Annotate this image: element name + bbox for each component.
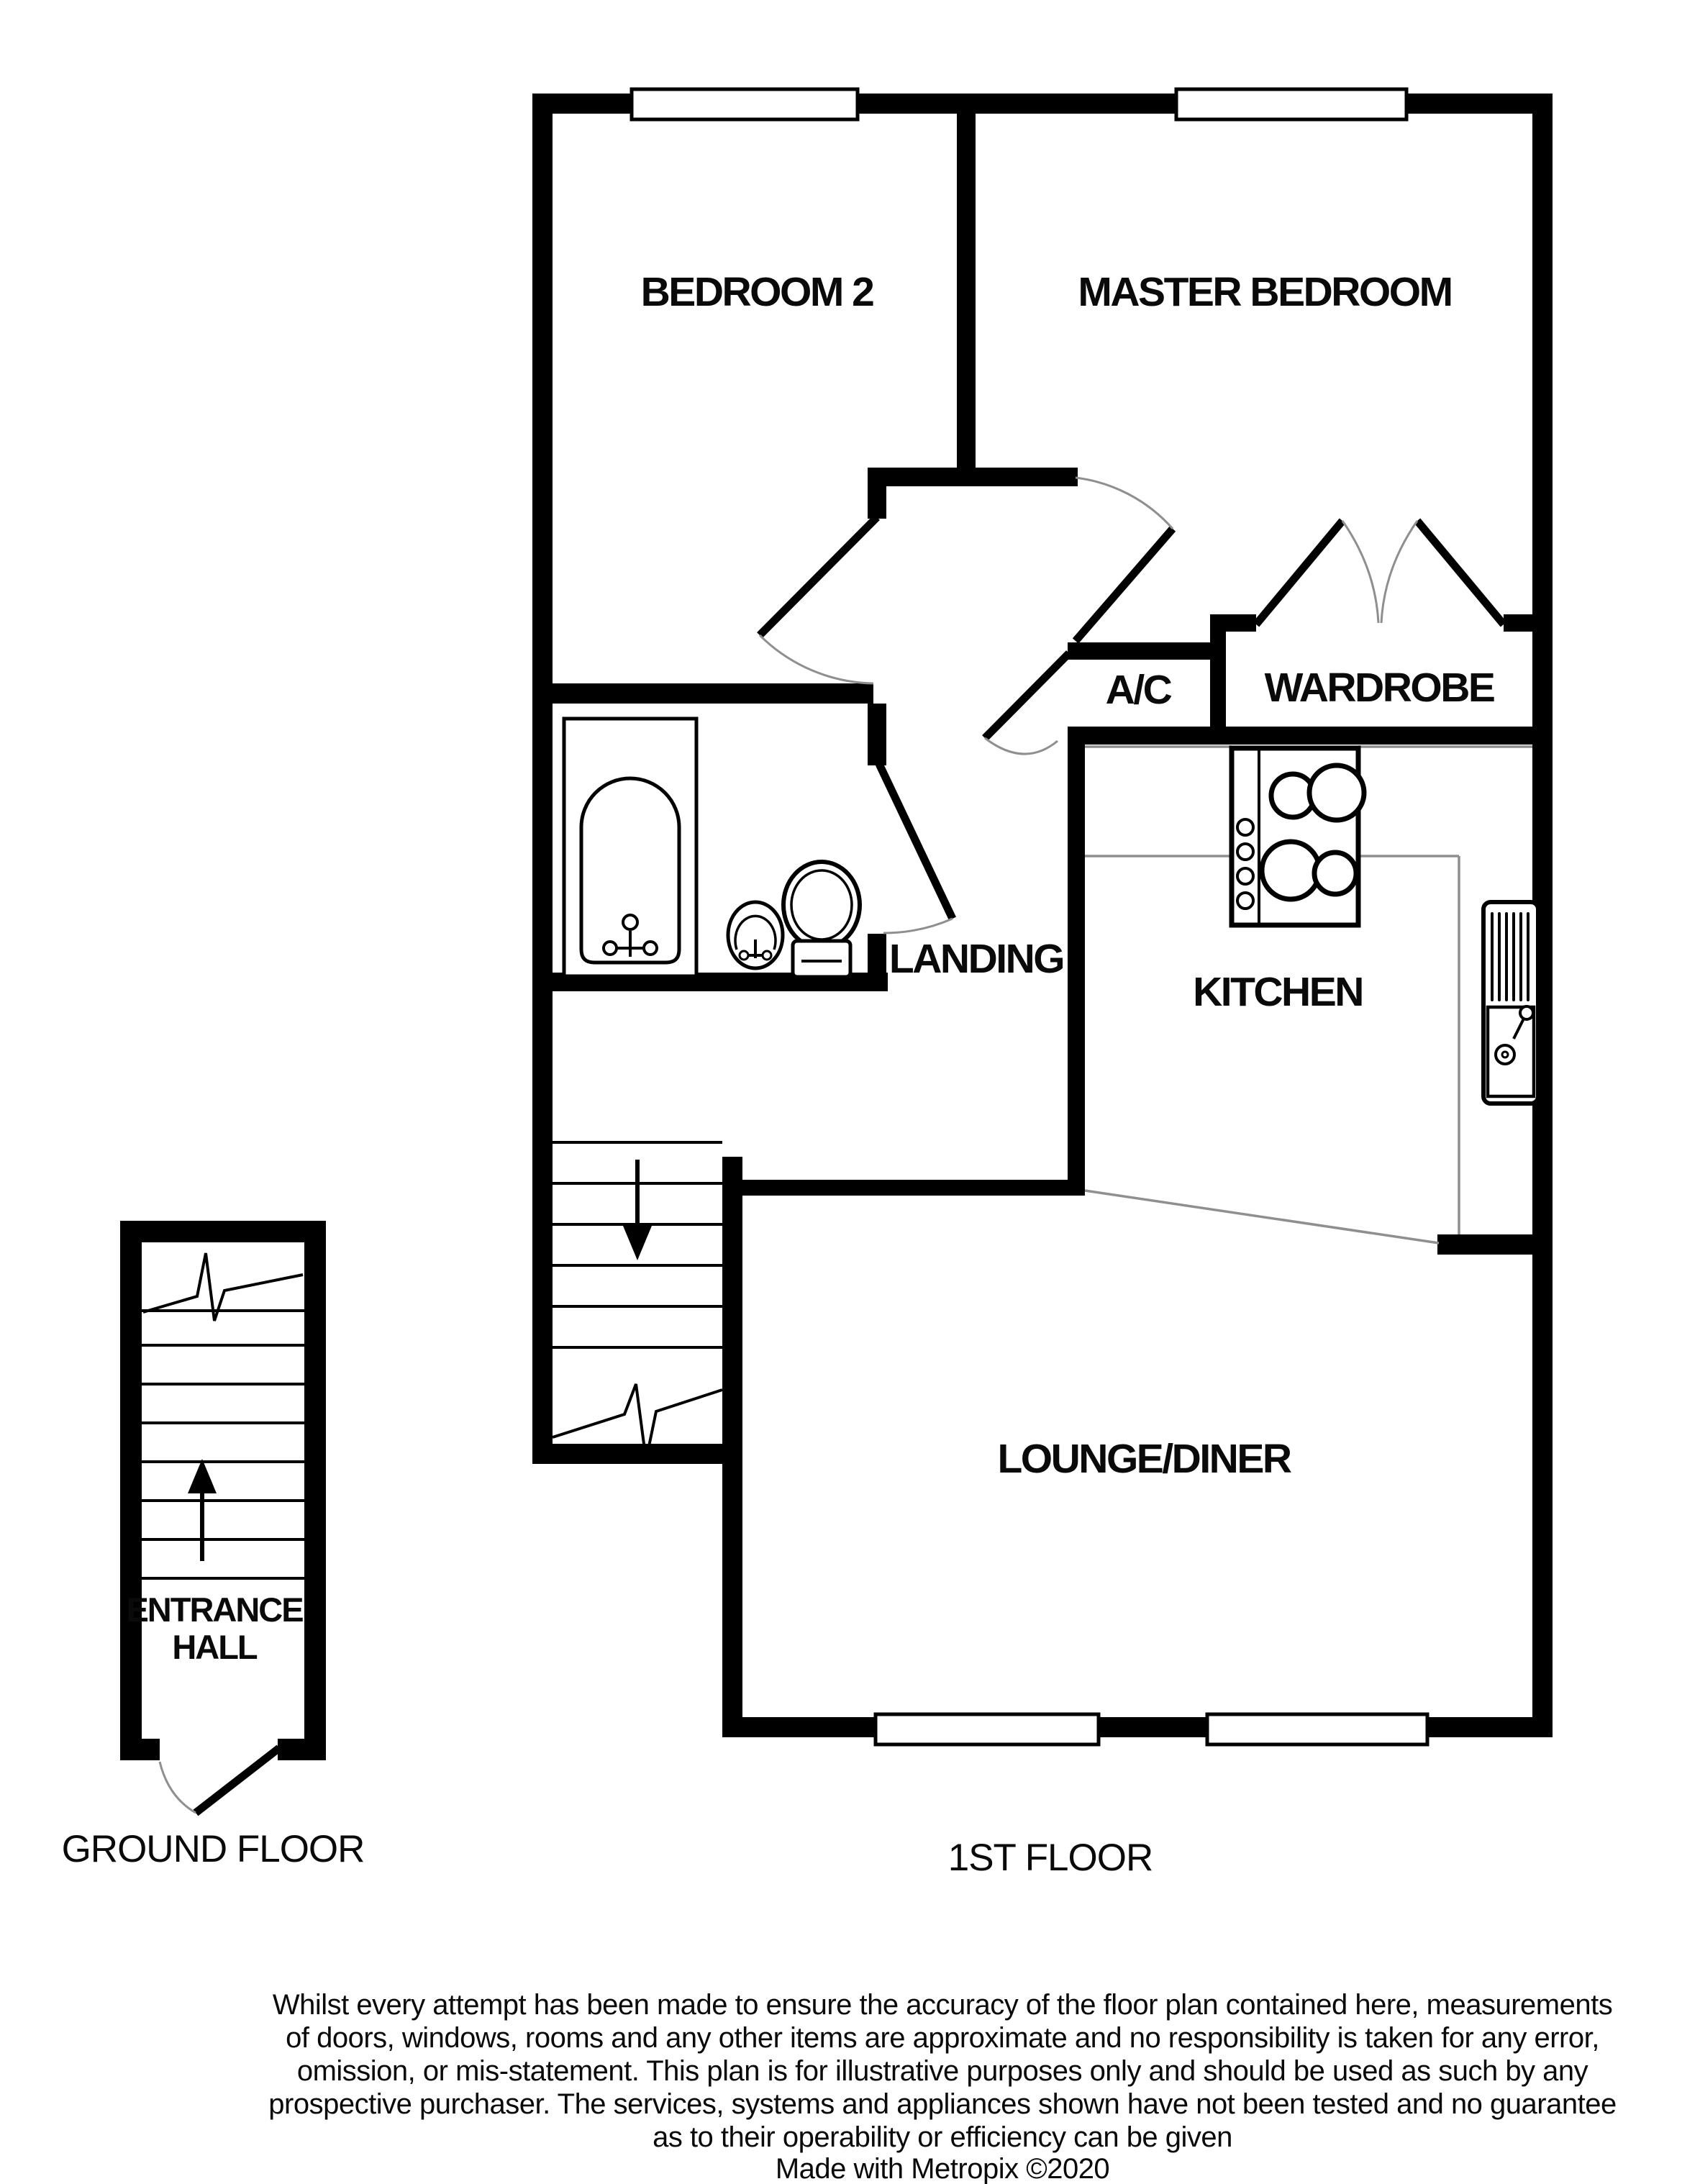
- wardrobe-bifold-doors: [1256, 521, 1504, 624]
- wall-stairs-bottom: [532, 1444, 742, 1464]
- door-entrance-leaf: [196, 1748, 279, 1813]
- basin-tap-right: [763, 951, 771, 960]
- label-wardrobe: WARDROBE: [1265, 665, 1494, 711]
- gf-wall-top: [120, 1221, 326, 1242]
- door-ac-leaf: [985, 653, 1069, 738]
- disclaimer-line-5: as to their operability or efficiency ca…: [653, 2121, 1232, 2153]
- wall-stairs-lounge-divider: [722, 1157, 742, 1737]
- open-plan-divider-line: [1085, 1191, 1439, 1243]
- door-bathroom-leaf: [879, 764, 953, 919]
- label-ac: A/C: [1106, 667, 1172, 713]
- label-landing: LANDING: [889, 936, 1063, 982]
- door-entrance: [160, 1748, 279, 1813]
- gf-wall-bottom-left: [120, 1739, 160, 1760]
- gf-wall-bottom-right: [278, 1739, 326, 1760]
- stairs-down-arrow-head: [623, 1226, 652, 1260]
- door-master-arc: [1076, 478, 1173, 529]
- label-master-bedroom: MASTER BEDROOM: [1078, 269, 1451, 315]
- label-kitchen: KITCHEN: [1193, 969, 1363, 1015]
- wall-bathroom-top: [553, 683, 873, 704]
- door-ac-arc: [985, 738, 1058, 754]
- label-lounge-diner: LOUNGE/DINER: [997, 1436, 1291, 1482]
- label-ground-floor: GROUND FLOOR: [62, 1828, 365, 1870]
- window-lounge-right: [1207, 1714, 1427, 1744]
- wall-bedroom2-door-stub: [868, 486, 886, 519]
- sink-tap-base: [1520, 1006, 1533, 1019]
- ground-floor-plan: ENTRANCE HALL: [120, 1221, 326, 1813]
- disclaimer-line-4: prospective purchaser. The services, sys…: [268, 2088, 1616, 2120]
- floor-plan-canvas: BEDROOM 2 MASTER BEDROOM A/C WARDROBE LA…: [0, 0, 1700, 2184]
- stove-knob: [1237, 893, 1253, 909]
- label-entrance-hall-line1: ENTRANCE: [126, 1591, 303, 1629]
- door-ac: [985, 653, 1069, 754]
- label-entrance-hall-line2: HALL: [172, 1628, 258, 1666]
- door-bathroom-arc: [883, 919, 953, 933]
- wall-bedroom-divider: [957, 114, 976, 469]
- basin-tap-left: [740, 951, 748, 960]
- first-floor-plan: BEDROOM 2 MASTER BEDROOM A/C WARDROBE LA…: [532, 89, 1553, 1744]
- label-first-floor: 1ST FLOOR: [948, 1837, 1153, 1879]
- stairs-up-arrow-head: [188, 1459, 217, 1493]
- wall-kitchen-left: [1068, 745, 1085, 1196]
- door-master-bedroom: [1076, 478, 1173, 641]
- bathtub-tap-left: [604, 942, 617, 955]
- sink-drain-inner: [1502, 1052, 1508, 1057]
- credit-line-metropix: Made with Metropix ©2020: [776, 2153, 1109, 2184]
- disclaimer-line-2: of doors, windows, rooms and any other i…: [286, 2022, 1599, 2054]
- wall-kitchen-lounge-stub: [1437, 1234, 1553, 1255]
- toilet-bowl-inner: [791, 870, 852, 939]
- door-bathroom: [879, 764, 953, 933]
- disclaimer-line-1: Whilst every attempt has been made to en…: [273, 1989, 1612, 2021]
- bathtub-drain: [623, 915, 637, 929]
- wall-wardrobe-front-west: [1210, 614, 1256, 632]
- door-bedroom2-arc: [760, 635, 873, 683]
- bathtub-icon: [564, 719, 696, 976]
- wall-ac-top: [1068, 642, 1210, 660]
- floor-plan-page: BEDROOM 2 MASTER BEDROOM A/C WARDROBE LA…: [0, 0, 1700, 2184]
- wall-left: [532, 94, 553, 1464]
- door-bedroom2: [760, 517, 877, 683]
- disclaimer-text-block: Whilst every attempt has been made to en…: [268, 1989, 1616, 2184]
- wall-lounge-top: [722, 1180, 1085, 1196]
- stove-knob: [1237, 844, 1253, 860]
- window-bedroom2: [632, 89, 858, 119]
- stairs-ground-floor: [142, 1253, 304, 1578]
- bifold-arc-right: [1381, 521, 1417, 623]
- wall-kitchen-top: [1068, 727, 1553, 745]
- bifold-leaf-left: [1256, 521, 1342, 624]
- wall-wardrobe-front-east: [1504, 614, 1532, 632]
- sink-unit-icon: [1483, 902, 1538, 1104]
- door-entrance-arc: [160, 1762, 196, 1813]
- kitchen-fixtures: [1232, 748, 1538, 1104]
- stairs-first-floor: [553, 1142, 722, 1460]
- window-master-bedroom: [1176, 89, 1406, 119]
- stove-burner-bottom-right: [1314, 852, 1356, 894]
- label-bedroom2: BEDROOM 2: [641, 269, 874, 315]
- bifold-arc-left: [1342, 521, 1378, 623]
- bathroom-fixtures: [564, 719, 860, 977]
- wall-bathroom-right-upper: [868, 704, 886, 765]
- wall-ac-wardrobe-divider: [1210, 623, 1226, 744]
- basin-icon: [728, 902, 783, 968]
- toilet-icon: [783, 862, 860, 977]
- stove-knob: [1237, 868, 1253, 884]
- stove-burner-bottom-left: [1262, 842, 1319, 899]
- stove-knob: [1237, 819, 1253, 835]
- bifold-leaf-right: [1417, 521, 1504, 624]
- stove-burner-top-right: [1309, 765, 1364, 820]
- disclaimer-line-3: omission, or mis-statement. This plan is…: [297, 2055, 1588, 2087]
- wall-bedrooms-landing: [868, 468, 1078, 486]
- toilet-cistern: [793, 941, 850, 977]
- gf-wall-right: [304, 1221, 326, 1760]
- door-master-leaf: [1076, 529, 1173, 641]
- stove-icon: [1232, 748, 1364, 925]
- door-bedroom2-leaf: [760, 517, 877, 635]
- window-lounge-left: [876, 1714, 1099, 1744]
- gf-wall-left: [120, 1221, 142, 1760]
- bathtub-tap-right: [644, 942, 657, 955]
